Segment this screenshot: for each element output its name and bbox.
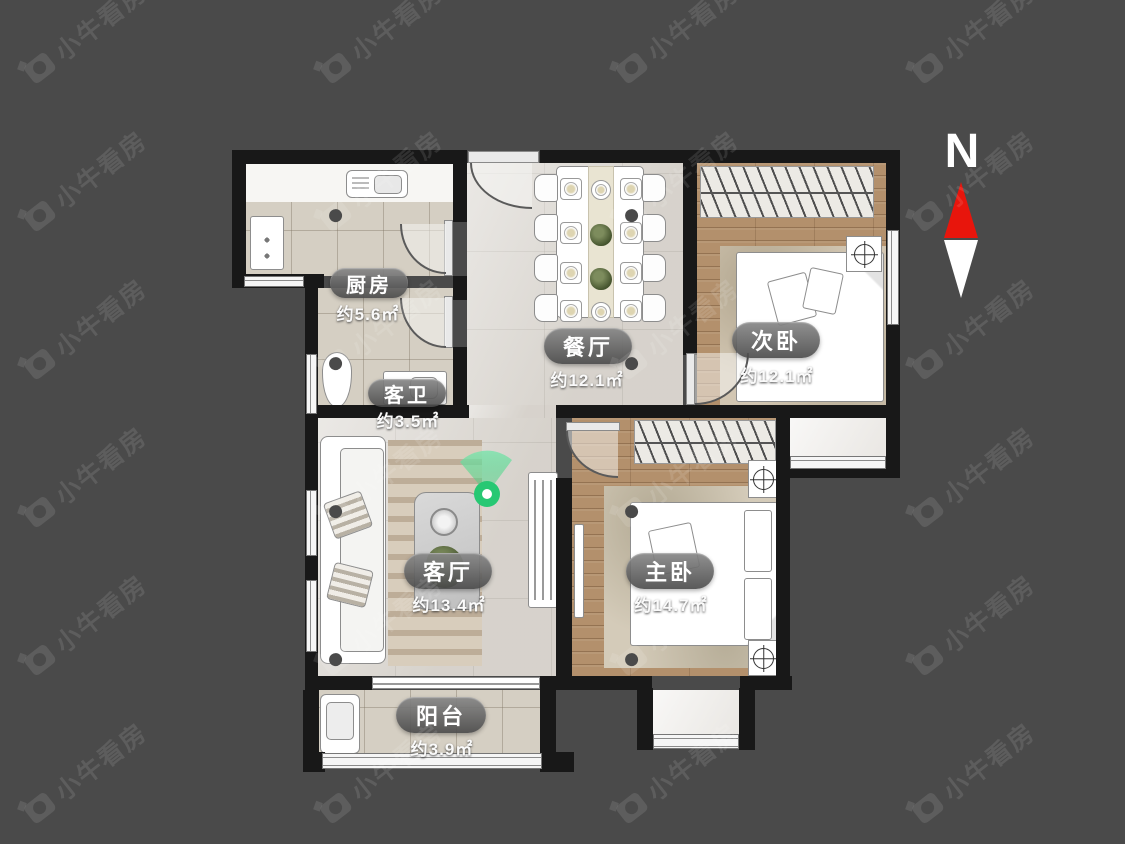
watermark-camera-icon (910, 495, 945, 529)
dining-plate (620, 178, 642, 200)
living-window (306, 490, 317, 556)
balcony-label: 阳台 (396, 697, 486, 733)
watermark: 小牛看房 (314, 0, 450, 91)
dining-centerpiece (591, 180, 611, 200)
wall (556, 478, 572, 678)
kitchen-window (244, 276, 304, 287)
master-bedroom-label: 主卧 (626, 553, 714, 589)
watermark-text: 小牛看房 (935, 565, 1042, 660)
watermark: 小牛看房 (18, 121, 154, 238)
watermark-camera-icon (910, 347, 945, 381)
washing-machine-lid (326, 702, 354, 740)
wall (305, 676, 372, 690)
master-door-leaf (566, 422, 620, 431)
wall (232, 150, 246, 288)
watermark-camera-icon (910, 791, 945, 825)
dining-chair (642, 174, 666, 202)
kitchen-stove-burners (258, 236, 276, 262)
dining-chair (642, 294, 666, 322)
master-wardrobe (634, 420, 776, 464)
watermark-camera-icon (910, 199, 945, 233)
watermark-text: 小牛看房 (935, 713, 1042, 808)
watermark: 小牛看房 (18, 713, 154, 830)
living-window (306, 580, 317, 652)
watermark: 小牛看房 (18, 417, 154, 534)
watermark-camera-icon (22, 347, 57, 381)
kitchen-sink-basin (374, 175, 402, 194)
second-bedroom-lamp-icon (854, 244, 875, 265)
dining-chair (534, 214, 558, 242)
watermark-text: 小牛看房 (935, 0, 1042, 68)
dining-plate (620, 300, 642, 322)
master-tv (574, 524, 584, 618)
dining-chair (642, 214, 666, 242)
second-bedroom-area: 约12.1㎡ (722, 362, 832, 387)
watermark-text: 小牛看房 (935, 417, 1042, 512)
watermark: 小牛看房 (906, 0, 1042, 91)
watermark-camera-icon (318, 791, 353, 825)
compass-north-label: N (936, 124, 988, 179)
master-lamp-icon (753, 469, 774, 490)
bath-window (306, 354, 317, 414)
guest-bath-label: 客卫 (368, 379, 446, 407)
second-bedroom-wardrobe (700, 166, 874, 218)
dining-centerpiece (591, 302, 611, 322)
watermark-camera-icon (614, 791, 649, 825)
watermark-camera-icon (614, 51, 649, 85)
wall (540, 690, 556, 756)
master-pillow (744, 578, 772, 640)
bottom-bay-window (653, 734, 739, 749)
side-bay-floor (790, 418, 886, 458)
tv-console-lines (534, 480, 552, 600)
side-bay-window (790, 456, 886, 469)
watermark-text: 小牛看房 (47, 565, 154, 660)
dining-area: 约12.1㎡ (528, 366, 646, 391)
floorplan-canvas: 厨房 约5.6㎡ 客卫 约3.5㎡ 餐厅 约12.1㎡ 次卧 约12.1㎡ 客厅… (0, 0, 1125, 844)
watermark: 小牛看房 (610, 0, 746, 91)
dining-chair (534, 254, 558, 282)
wall (453, 276, 467, 300)
watermark-text: 小牛看房 (47, 713, 154, 808)
wall (540, 150, 900, 163)
master-bedroom-area: 约14.7㎡ (614, 591, 728, 616)
dining-plate (560, 178, 582, 200)
living-area: 约13.4㎡ (394, 591, 504, 616)
watermark: 小牛看房 (906, 417, 1042, 534)
living-label: 客厅 (404, 553, 492, 589)
dining-plant (590, 224, 612, 246)
watermark-text: 小牛看房 (343, 0, 450, 68)
balcony-sliding-door (372, 677, 540, 689)
wall (637, 688, 653, 750)
wall (739, 688, 755, 750)
dining-label: 餐厅 (544, 328, 632, 364)
second-bedroom-label: 次卧 (732, 322, 820, 358)
watermark-text: 小牛看房 (47, 121, 154, 216)
wall (232, 150, 467, 164)
watermark: 小牛看房 (18, 269, 154, 386)
dining-chair (534, 294, 558, 322)
master-pillow (744, 510, 772, 572)
dining-plant (590, 268, 612, 290)
kitchen-label: 厨房 (330, 268, 408, 298)
wall (556, 405, 900, 418)
watermark-text: 小牛看房 (47, 417, 154, 512)
watermark: 小牛看房 (18, 565, 154, 682)
watermark-camera-icon (22, 495, 57, 529)
bottom-bay-floor (653, 690, 739, 735)
kitchen-drainboard (352, 177, 369, 192)
watermark-camera-icon (22, 643, 57, 677)
dining-plate (620, 262, 642, 284)
dining-plate (620, 222, 642, 244)
wall (776, 418, 790, 680)
master-lamp-icon (753, 648, 774, 669)
dining-plate (560, 262, 582, 284)
watermark: 小牛看房 (906, 565, 1042, 682)
watermark-camera-icon (318, 51, 353, 85)
dining-plate (560, 222, 582, 244)
watermark-text: 小牛看房 (639, 0, 746, 68)
watermark-text: 小牛看房 (47, 269, 154, 364)
watermark-camera-icon (22, 199, 57, 233)
second-bedroom-door-leaf (686, 353, 695, 405)
second-bedroom-window (887, 230, 899, 325)
watermark-camera-icon (22, 791, 57, 825)
compass-north-arrow-icon (944, 182, 978, 238)
wall (540, 676, 558, 690)
entry-door-leaf (468, 151, 539, 163)
wall (783, 468, 900, 478)
watermark-camera-icon (910, 51, 945, 85)
watermark: 小牛看房 (906, 713, 1042, 830)
sofa-seat (340, 448, 384, 652)
watermark-text: 小牛看房 (47, 0, 154, 68)
guest-bath-area: 约3.5㎡ (358, 407, 458, 432)
compass-south-arrow-icon (944, 240, 978, 298)
dining-plate (560, 300, 582, 322)
wall (683, 163, 697, 355)
watermark-camera-icon (910, 643, 945, 677)
dining-chair (534, 174, 558, 202)
wall (453, 163, 467, 222)
balcony-area: 约3.9㎡ (400, 735, 484, 760)
watermark: 小牛看房 (18, 0, 154, 91)
dining-chair (642, 254, 666, 282)
vr-viewpoint-marker[interactable] (450, 450, 524, 520)
kitchen-area: 约5.6㎡ (318, 300, 418, 325)
watermark-camera-icon (22, 51, 57, 85)
